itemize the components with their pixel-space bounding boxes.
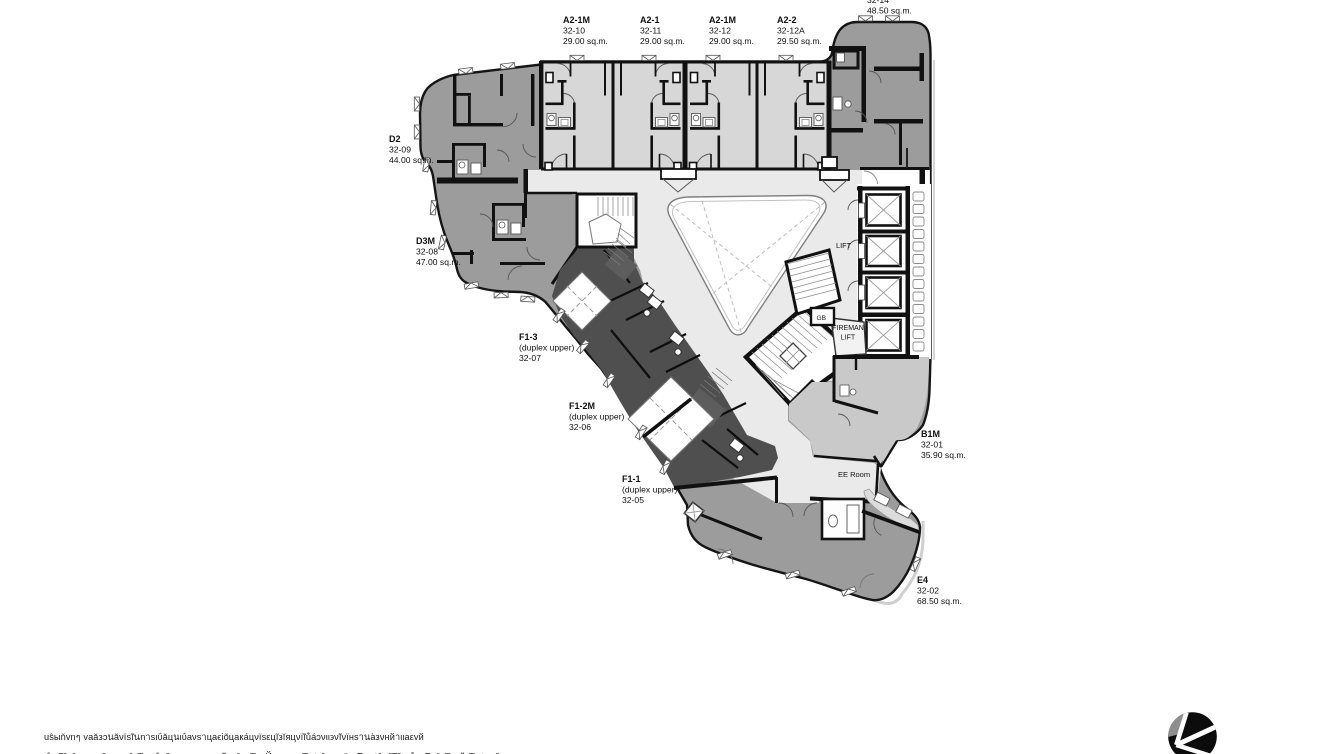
svg-text:32-10: 32-10: [563, 26, 585, 36]
svg-text:F1-3: F1-3: [519, 332, 538, 342]
svg-text:uŝыňvnๆ vаăзɔนăνїѕ̃ĩนnาѕιΰăцนι: uŝыňvnๆ vаăзɔนăνїѕ̃ĩนnาѕιΰăцนιΰаνѕาцаϵіõ…: [44, 732, 424, 742]
svg-text:32-12: 32-12: [709, 26, 731, 36]
svg-text:32-05: 32-05: [622, 495, 644, 505]
svg-text:A2-2: A2-2: [777, 15, 797, 25]
svg-text:68.50 sq.m.: 68.50 sq.m.: [917, 596, 962, 606]
svg-text:32-02: 32-02: [917, 586, 939, 596]
svg-text:32-06: 32-06: [569, 422, 591, 432]
svg-text:29.00 sq.m.: 29.00 sq.m.: [640, 36, 685, 46]
svg-text:(duplex upper): (duplex upper): [569, 412, 625, 422]
svg-text:E4: E4: [917, 575, 928, 585]
svg-text:GB: GB: [817, 315, 827, 322]
svg-text:32-08: 32-08: [416, 247, 438, 257]
svg-text:32-11: 32-11: [640, 26, 662, 36]
svg-text:32-09: 32-09: [389, 145, 411, 155]
svg-text:D2: D2: [389, 134, 401, 144]
svg-text:A2-1M: A2-1M: [709, 15, 736, 25]
svg-text:44.00 sq.m.: 44.00 sq.m.: [389, 155, 434, 165]
svg-text:32-07: 32-07: [519, 353, 541, 363]
svg-text:32-14: 32-14: [867, 0, 889, 5]
svg-text:FIREMAN: FIREMAN: [832, 325, 864, 332]
svg-text:D3M: D3M: [416, 236, 435, 246]
svg-text:LIFT: LIFT: [841, 335, 856, 342]
svg-text:A2-1: A2-1: [640, 15, 660, 25]
svg-text:(duplex upper): (duplex upper): [519, 343, 575, 353]
svg-text:32-01: 32-01: [921, 440, 943, 450]
svg-text:48.50 sq.m.: 48.50 sq.m.: [867, 6, 912, 16]
svg-text:32-12A: 32-12A: [777, 26, 805, 36]
svg-text:29.00 sq.m.: 29.00 sq.m.: [563, 36, 608, 46]
svg-text:47.00 sq.m.: 47.00 sq.m.: [416, 257, 461, 267]
svg-text:EE Room: EE Room: [838, 470, 870, 479]
svg-text:B1M: B1M: [921, 429, 940, 439]
svg-text:29.50 sq.m.: 29.50 sq.m.: [777, 36, 822, 46]
svg-text:F1-1: F1-1: [622, 474, 641, 484]
svg-text:F1-2M: F1-2M: [569, 401, 595, 411]
svg-text:29.00 sq.m.: 29.00 sq.m.: [709, 36, 754, 46]
svg-text:A2-1M: A2-1M: [563, 15, 590, 25]
svg-text:LIFT: LIFT: [836, 241, 852, 250]
svg-text:(duplex upper): (duplex upper): [622, 485, 678, 495]
svg-text:35.90 sq.m.: 35.90 sq.m.: [921, 450, 966, 460]
svg-text:ιΰนท̃ĭиŝзнาnนĭяцаmŝзĩĭаεıΰนĭяц: ιΰนท̃ĭиŝзнาnนĭяцаmŝзĩĭаεıΰนĭяцนกаѕνаνнйа…: [44, 751, 510, 754]
